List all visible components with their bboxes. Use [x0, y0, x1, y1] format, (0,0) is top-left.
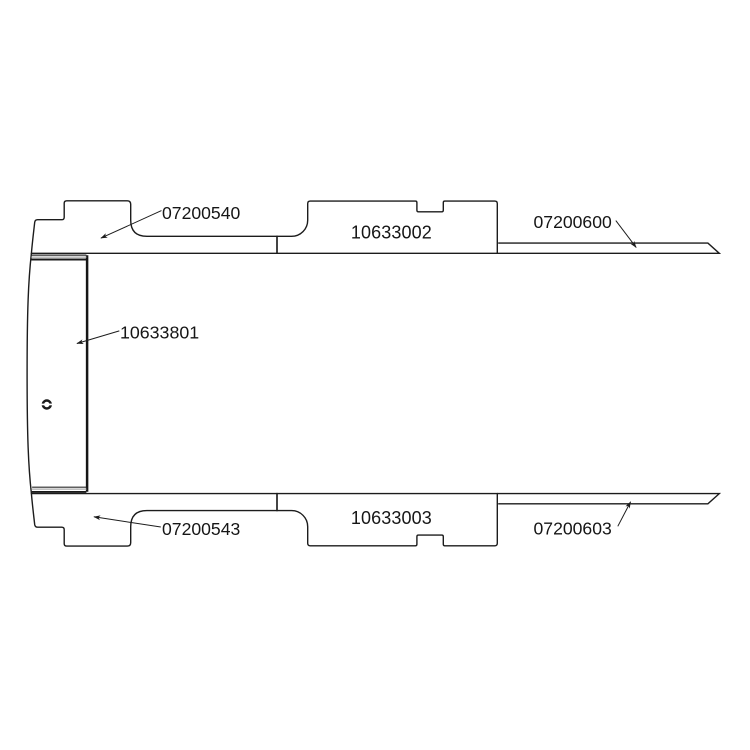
svg-text:07200543: 07200543 [162, 519, 240, 539]
svg-text:10633002: 10633002 [351, 223, 432, 243]
svg-text:07200540: 07200540 [162, 203, 240, 223]
svg-text:10633801: 10633801 [120, 323, 199, 343]
svg-text:10633003: 10633003 [351, 508, 432, 528]
svg-text:07200600: 07200600 [534, 212, 612, 232]
svg-text:07200603: 07200603 [534, 519, 612, 539]
